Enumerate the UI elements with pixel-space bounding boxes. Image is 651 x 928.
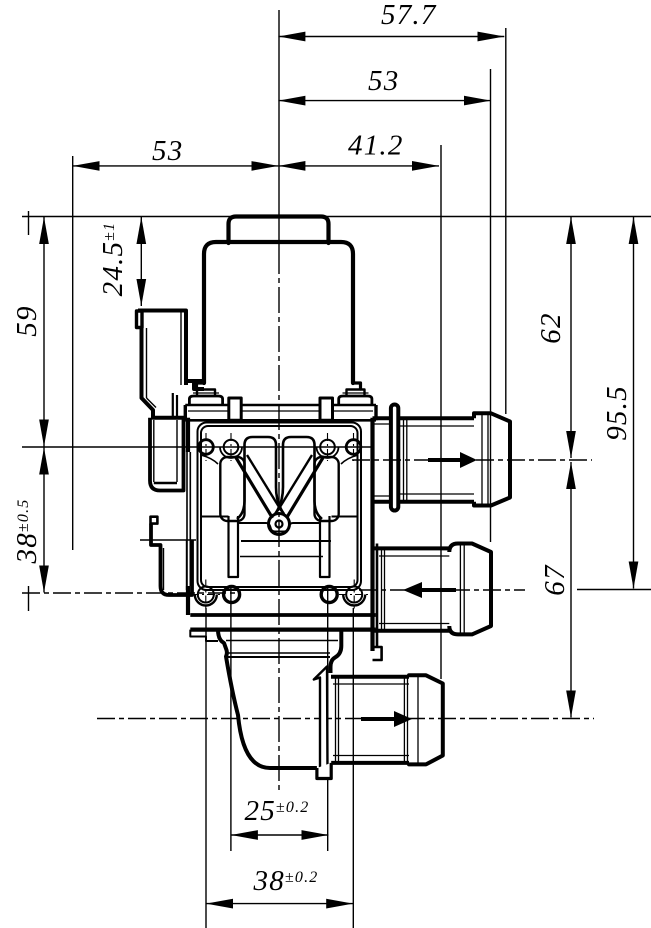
svg-text:24.5±1: 24.5±1	[97, 222, 129, 297]
svg-text:62: 62	[535, 312, 567, 343]
svg-text:38±0.5: 38±0.5	[11, 499, 43, 565]
svg-text:57.7: 57.7	[381, 0, 437, 31]
svg-text:41.2: 41.2	[348, 130, 404, 162]
svg-text:38±0.2: 38±0.2	[253, 865, 319, 897]
svg-text:59: 59	[11, 305, 43, 336]
svg-text:53: 53	[368, 65, 399, 97]
svg-text:95.5: 95.5	[601, 385, 633, 441]
svg-text:53: 53	[152, 135, 183, 167]
svg-text:25±0.2: 25±0.2	[245, 795, 310, 827]
svg-text:67: 67	[539, 564, 571, 596]
